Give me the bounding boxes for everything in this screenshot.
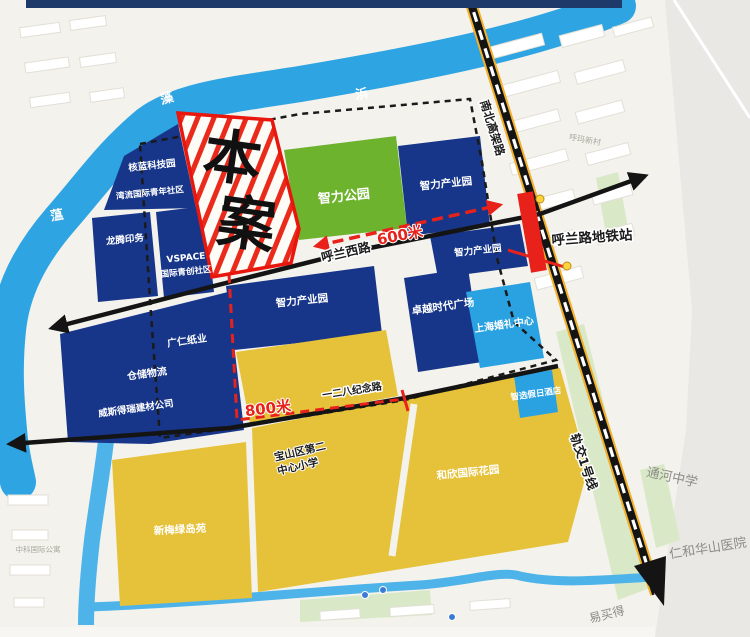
metro-entrance-icon <box>449 614 456 621</box>
block-zhili-park <box>284 136 407 240</box>
station-dot <box>563 262 571 270</box>
site-label-top: 本 <box>199 120 266 195</box>
site-label-bottom: 案 <box>213 186 281 262</box>
block-zhuoyue-plaza <box>404 268 482 372</box>
metro-entrance-icon <box>380 587 387 594</box>
label-zhongke-apartment: 中科国际公寓 <box>16 544 61 554</box>
building <box>8 495 48 505</box>
metro-entrance-icon <box>362 592 369 599</box>
building <box>12 530 48 540</box>
station-dot <box>536 195 544 203</box>
bottom-strip <box>0 627 655 637</box>
river-label-1: 蕰 <box>49 206 65 224</box>
top-navy-bar <box>26 0 622 8</box>
building <box>10 565 50 575</box>
river-label-3: 浜 <box>354 86 369 104</box>
location-map: 本 案 蕰 藻 浜 核蓝科技园 湾流国际青年社区 龙腾印务 VSPACE 国际青… <box>0 0 750 637</box>
map-canvas: 本 案 蕰 藻 浜 核蓝科技园 湾流国际青年社区 龙腾印务 VSPACE 国际青… <box>0 0 750 637</box>
building <box>14 598 44 607</box>
